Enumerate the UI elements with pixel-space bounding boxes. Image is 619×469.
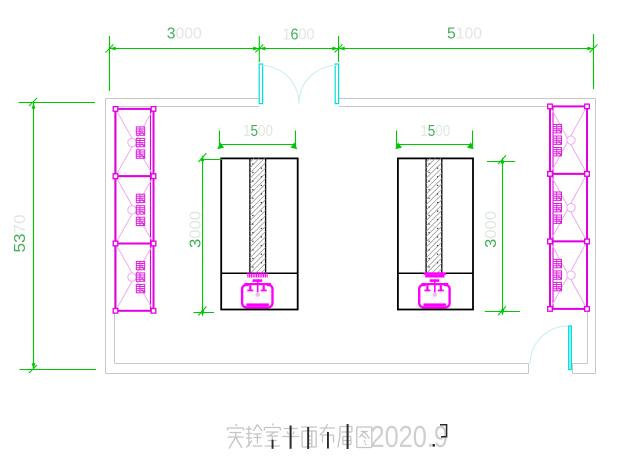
svg-text:3000: 3000 <box>483 211 500 248</box>
svg-text:2020.9: 2020.9 <box>371 419 449 454</box>
svg-text:1500: 1500 <box>420 123 450 140</box>
svg-text:3000: 3000 <box>187 211 204 248</box>
svg-text:5100: 5100 <box>447 26 482 43</box>
svg-text:3000: 3000 <box>167 26 202 43</box>
svg-text:5370: 5370 <box>12 214 29 252</box>
svg-text:1600: 1600 <box>283 27 315 44</box>
svg-text:1500: 1500 <box>243 123 273 140</box>
